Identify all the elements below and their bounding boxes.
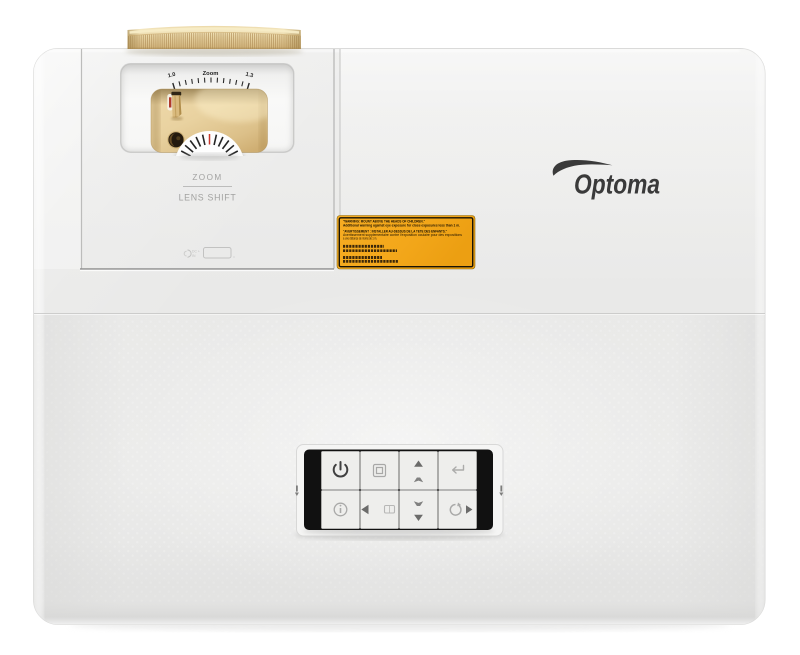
- svg-text:Additional warning against eye: Additional warning against eye exposure …: [343, 223, 460, 227]
- svg-text:LENS SHIFT: LENS SHIFT: [179, 193, 237, 203]
- svg-text:Zoom: Zoom: [203, 71, 219, 77]
- svg-text:ZOOM: ZOOM: [192, 173, 222, 182]
- svg-text:a une distance de moins de 1 m: a une distance de moins de 1 m.: [343, 236, 377, 240]
- svg-text:DC +: DC +: [192, 249, 200, 253]
- svg-text:IN: IN: [192, 254, 196, 258]
- svg-text:Optoma: Optoma: [574, 169, 660, 200]
- svg-text:=: =: [233, 256, 235, 260]
